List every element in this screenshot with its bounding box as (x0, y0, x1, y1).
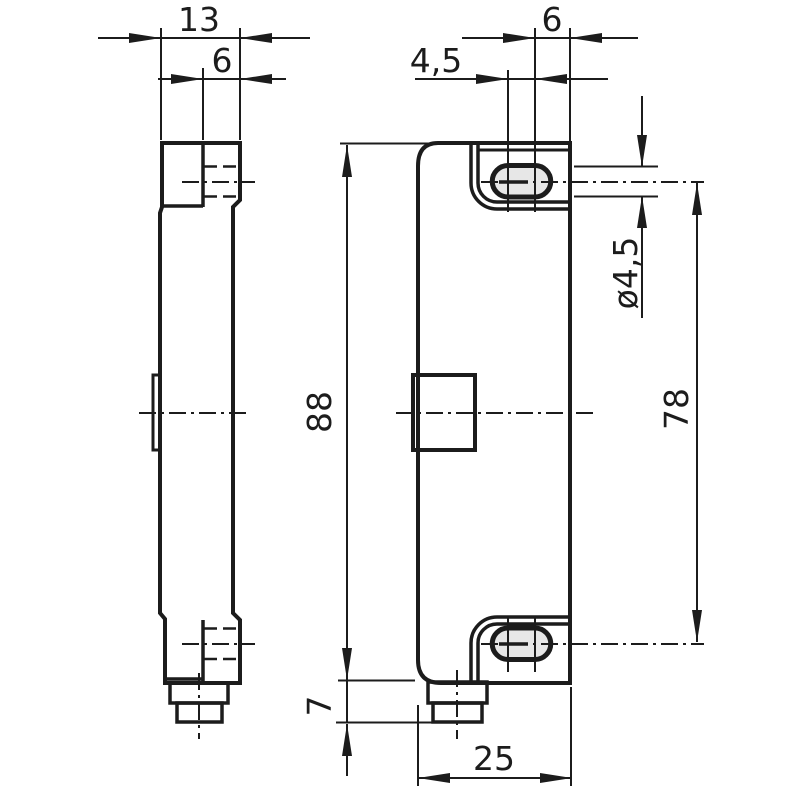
dimension-78: 78 (657, 183, 702, 642)
dimension-label: 78 (657, 388, 696, 430)
side-view (139, 143, 255, 739)
arrowhead (342, 648, 352, 680)
dimension-7: 7 (300, 681, 433, 776)
arrowhead (692, 183, 702, 215)
arrowhead (342, 145, 352, 177)
dimension-label: 6 (212, 41, 233, 80)
arrowhead (540, 773, 572, 783)
front-view (396, 143, 704, 739)
arrowhead (342, 724, 352, 756)
front-centerlines (396, 182, 704, 739)
arrowhead (240, 33, 272, 43)
dimension-label: 7 (300, 696, 339, 717)
dimension-label: 25 (473, 739, 515, 778)
dimension-dia-4-5: ø4,5 (574, 96, 658, 318)
arrowhead (171, 74, 203, 84)
arrowhead (503, 33, 535, 43)
arrowhead (240, 74, 272, 84)
dimension-88: 88 (300, 144, 436, 681)
arrowhead (637, 135, 647, 167)
dimension-label: 88 (300, 391, 339, 433)
technical-drawing: 13 6 6 4,5 (0, 0, 800, 800)
dimension-label: 6 (542, 0, 563, 39)
dimension-annotations: 13 6 6 4,5 (98, 0, 702, 786)
side-centerlines (139, 182, 255, 739)
arrowhead (637, 196, 647, 228)
arrowhead (692, 610, 702, 642)
arrowhead (476, 74, 508, 84)
dimension-6-side: 6 (158, 41, 286, 140)
dimension-label: ø4,5 (606, 237, 645, 310)
dimension-label: 13 (178, 0, 220, 39)
arrowhead (535, 74, 567, 84)
dimension-4-5: 4,5 (410, 41, 608, 212)
arrowhead (570, 33, 602, 43)
dimension-label: 4,5 (410, 41, 462, 80)
arrowhead (418, 773, 450, 783)
drawing-canvas: 13 6 6 4,5 (0, 0, 800, 800)
arrowhead (129, 33, 161, 43)
